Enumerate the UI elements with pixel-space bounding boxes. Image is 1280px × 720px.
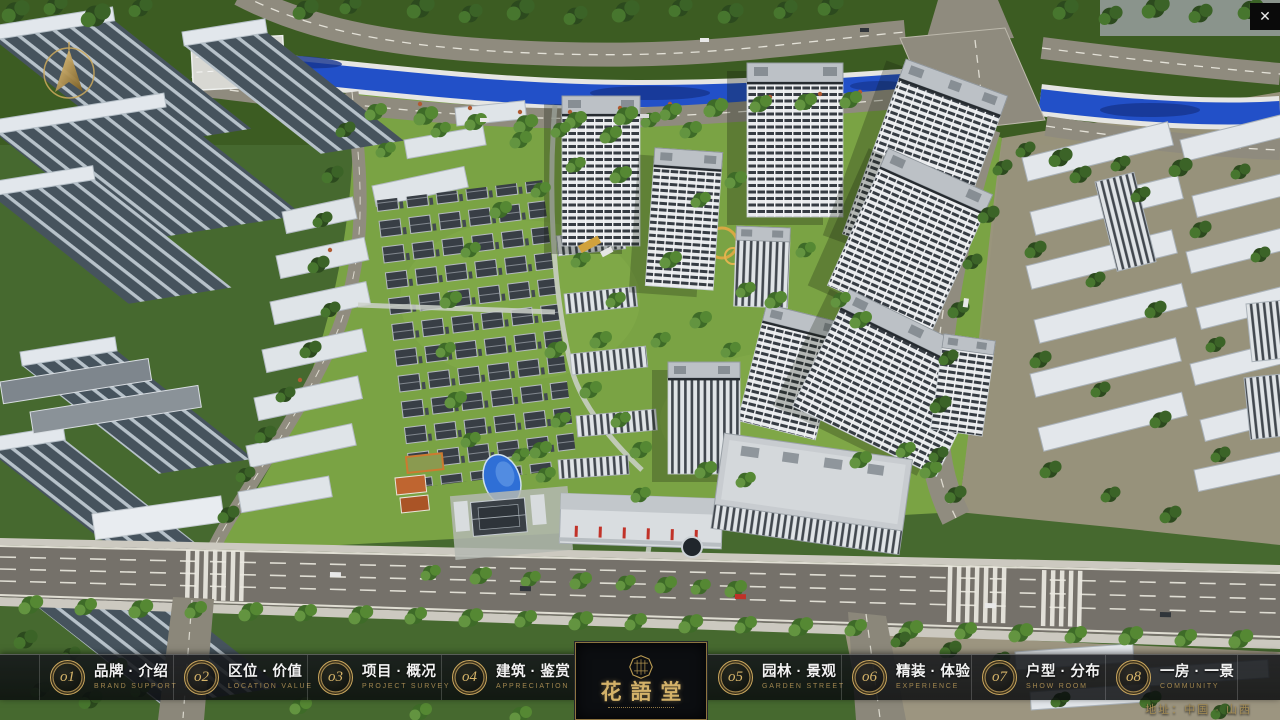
nav-separator xyxy=(1237,655,1238,700)
seal-emblem-icon xyxy=(628,654,654,680)
nav-label-en: GARDEN STREET xyxy=(762,683,845,690)
nav-label-en: LOCATION VALUE xyxy=(228,683,313,690)
north-arrow-icon xyxy=(55,49,83,92)
nav-label-en: APPRECIATION xyxy=(496,683,570,690)
nav-label-zh: 品牌 · 介绍 xyxy=(94,665,178,680)
masterplan-render xyxy=(0,0,1280,720)
sports-court xyxy=(395,475,427,495)
nav-label-zh: 区位 · 价值 xyxy=(228,665,313,680)
nav-number-badge: o6 xyxy=(852,660,887,695)
entry-fountain xyxy=(682,537,702,557)
nav-item-architecture[interactable]: o4 建筑 · 鉴赏 APPRECIATION xyxy=(441,655,575,700)
nav-label-zh: 园林 · 景观 xyxy=(762,665,845,680)
close-icon: ✕ xyxy=(1259,8,1271,25)
nav-label-en: SHOW ROOM xyxy=(1026,683,1100,690)
close-button[interactable]: ✕ xyxy=(1250,3,1280,30)
gatehouse xyxy=(450,486,573,560)
nav-item-project[interactable]: o3 项目 · 概况 PROJECT SURVEY xyxy=(307,655,441,700)
nav-label-zh: 户型 · 分布 xyxy=(1026,665,1100,680)
nav-number-badge: o5 xyxy=(718,660,753,695)
nav-item-location[interactable]: o2 区位 · 价值 LOCATION VALUE xyxy=(173,655,307,700)
nav-label-zh: 项目 · 概况 xyxy=(362,665,450,680)
nav-number-badge: o7 xyxy=(982,660,1017,695)
nav-item-community[interactable]: o8 一房 · 一景 COMMUNITY xyxy=(1105,655,1237,700)
nav-label-en: BRAND SUPPORT xyxy=(94,683,178,690)
nav-number-badge: o2 xyxy=(184,660,219,695)
compass-north-indicator xyxy=(38,40,100,102)
project-name: 花語堂 xyxy=(592,682,691,703)
nav-label-en: EXPERIENCE xyxy=(896,683,970,690)
project-logo-button[interactable]: 花語堂 xyxy=(575,642,707,720)
logo-subtitle-rule xyxy=(608,707,674,708)
nav-item-interior[interactable]: o6 精装 · 体验 EXPERIENCE xyxy=(841,655,971,700)
nav-item-brand[interactable]: o1 品牌 · 介绍 BRAND SUPPORT xyxy=(39,655,173,700)
nav-number-badge: o8 xyxy=(1116,660,1151,695)
nav-label-en: COMMUNITY xyxy=(1160,683,1234,690)
nav-number-badge: o3 xyxy=(318,660,353,695)
nav-item-floorplan[interactable]: o7 户型 · 分布 SHOW ROOM xyxy=(971,655,1105,700)
nav-label-zh: 一房 · 一景 xyxy=(1160,665,1234,680)
sales-presentation-screen: ✕ o1 品牌 · 介绍 BRAND SUPPORT o2 区位 · 价值 LO… xyxy=(0,0,1280,720)
nav-label-zh: 精装 · 体验 xyxy=(896,665,970,680)
project-address: 地址：中国 · 山西 xyxy=(1145,701,1252,717)
nav-item-garden[interactable]: o5 园林 · 景观 GARDEN STREET xyxy=(707,655,841,700)
nav-number-badge: o4 xyxy=(452,660,487,695)
nav-label-zh: 建筑 · 鉴赏 xyxy=(496,665,570,680)
nav-number-badge: o1 xyxy=(50,660,85,695)
nav-label-en: PROJECT SURVEY xyxy=(362,683,450,690)
